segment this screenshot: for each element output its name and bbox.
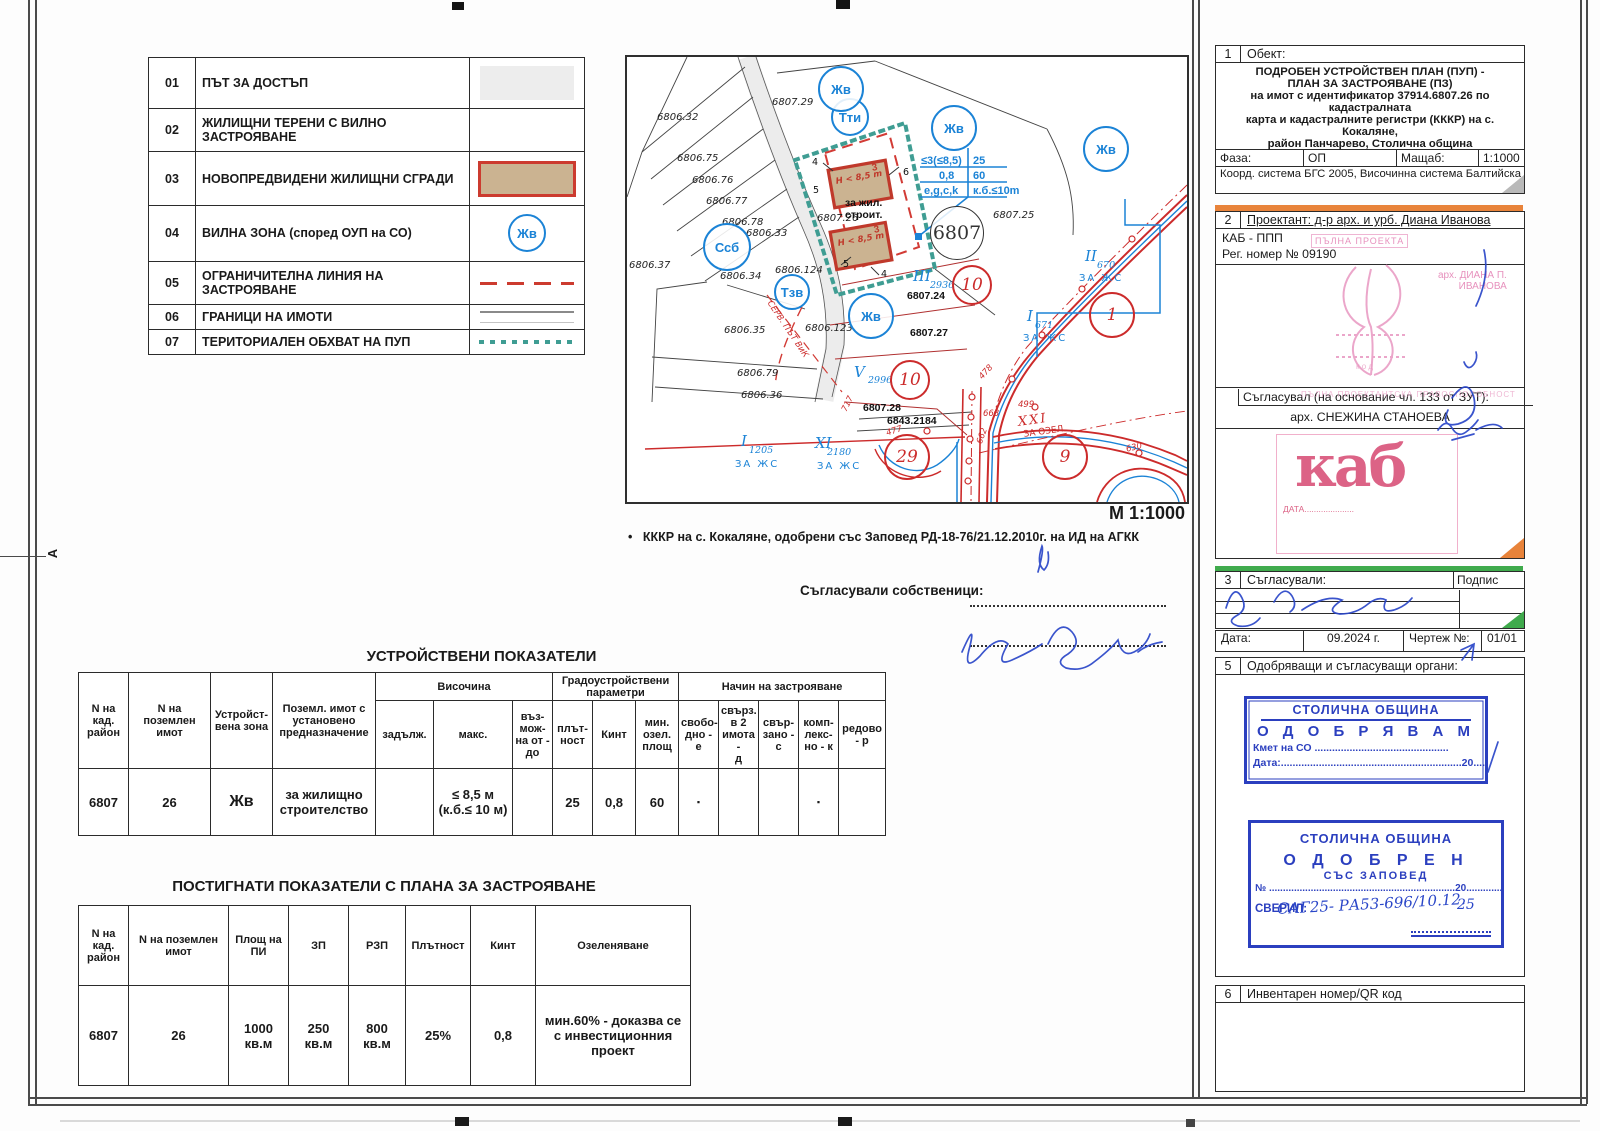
map-label: II: [1085, 247, 1097, 265]
th-redovo: редово - р: [839, 701, 886, 769]
fold-marker-letter: A: [45, 549, 60, 558]
cell2-zp: 250 кв.м: [289, 986, 349, 1086]
panel6-header: 6 Инвентарен номер/QR код: [1216, 986, 1524, 1003]
frame-sidebar-sep-inner: [1198, 0, 1200, 1097]
th2-kint: Кинт: [471, 906, 536, 986]
divider: [1216, 428, 1524, 429]
panel3-number: 3: [1216, 572, 1241, 588]
cell-ozel: 60: [636, 769, 679, 836]
kab-date-line: ДАТА.....................: [1283, 504, 1457, 514]
legend-row: 02 ЖИЛИЩНИ ТЕРЕНИ С ВИЛНО ЗАСТРОЯВАНЕ: [149, 109, 585, 152]
property-border-symbol: [480, 311, 574, 323]
legend-symbol-cell: [470, 305, 585, 330]
cell-kompleksno-mark: ▪: [799, 769, 839, 836]
cell-kint: 0,8: [593, 769, 636, 836]
restriction-line-symbol: [480, 282, 574, 285]
th-kompleksno: комп- лекс- но - к: [799, 701, 839, 769]
map-zone-circle: Жв: [848, 293, 894, 339]
legend-label: НОВОПРЕДВИДЕНИ ЖИЛИЩНИ СГРАДИ: [196, 152, 470, 206]
table1-title: УСТРОЙСТВЕНИ ПОКАЗАТЕЛИ: [78, 648, 885, 665]
legend-num: 02: [149, 109, 196, 152]
faza-row: Фаза: ОП Мащаб: 1:1000: [1216, 149, 1524, 166]
stamp2-sig-line: [1411, 935, 1491, 937]
map-label: 4: [881, 269, 887, 280]
coord-system: Коорд. система БГС 2005, Височинна систе…: [1216, 166, 1524, 181]
sig-row: [1216, 602, 1524, 614]
legend-num: 01: [149, 58, 196, 109]
map-label: 0,8: [939, 170, 954, 182]
panel3-header: 3 Съгласували: Подпис: [1216, 572, 1524, 589]
th-ozel: мин. озел. площ: [636, 701, 679, 769]
map-zone-circle: 9: [1042, 434, 1088, 480]
map-label: III: [913, 267, 931, 285]
podpis-divider: [1459, 590, 1460, 628]
frame-bottom-inner: [28, 1104, 1587, 1106]
map-label: 6806.77: [706, 196, 747, 207]
cell-redovo-mark: [839, 769, 886, 836]
frame-right-outer: [1580, 0, 1582, 1104]
divider: [1216, 387, 1524, 388]
th2-zp: ЗП: [289, 906, 349, 986]
map-zone-circle: Жв: [818, 66, 864, 112]
designer-name: Проектант: д-р арх. и урб. Диана Иванова: [1241, 212, 1524, 228]
th-kint: Кинт: [593, 701, 636, 769]
stamp2-num-dots: ........................................…: [1269, 883, 1501, 894]
signature-line: [970, 605, 1166, 607]
th2-imot: N на поземлен имот: [129, 906, 229, 986]
map-label: 5: [813, 185, 819, 196]
th-prednaznachenie: Поземл. имот с установено предназначение: [273, 673, 376, 769]
map-label: 6806.124: [775, 265, 823, 276]
legend-row: 04 ВИЛНА ЗОНА (според ОУП на СО) Жв: [149, 205, 585, 261]
sig-row: [1216, 589, 1460, 602]
map-label: за жил. строит.: [845, 197, 882, 221]
legend-symbol-cell: Жв: [470, 205, 585, 261]
frame-right-inner: [1586, 0, 1588, 1104]
map-label: I: [1027, 307, 1033, 325]
th-pozemlen-imot: N на поземлен имот: [129, 673, 211, 769]
panel5-label: Одобряващи и съгласуващи органи:: [1241, 658, 1524, 674]
frame-bottom-outer: [28, 1097, 1587, 1099]
legend-symbol-cell: [470, 152, 585, 206]
legend-row: 05 ОГРАНИЧИТЕЛНА ЛИНИЯ НА ЗАСТРОЯВАНЕ: [149, 262, 585, 305]
corner-mark-gray: [1502, 175, 1524, 193]
frame-left-inner: [35, 0, 37, 1104]
map-label: 6806.37: [629, 260, 670, 271]
th2-platnost: Плътност: [406, 906, 471, 986]
th-group-visochina: Височина: [376, 673, 553, 701]
title-block-inventory: 6 Инвентарен номер/QR код: [1215, 985, 1525, 1092]
th-svarzano-2: свърз. в 2 имота - д: [719, 701, 759, 769]
cell2-ozel: мин.60% - доказва се с инвестиционния пр…: [536, 986, 691, 1086]
th-svobodno: свобо- дно - е: [679, 701, 719, 769]
map-label: 6807.28: [863, 402, 901, 414]
architect-name-stamp: арх. ДИАНА П. ИВАНОВА: [1438, 270, 1507, 292]
cell2-kint: 0,8: [471, 986, 536, 1086]
map-label: 2996: [868, 375, 892, 386]
frame-sidebar-sep-outer: [1192, 0, 1194, 1097]
map-label: 60: [973, 170, 985, 182]
stamp1-date-line: Дата:...................................…: [1247, 754, 1485, 769]
scan-edge-bar: [60, 1120, 1580, 1122]
th2-plosht: Площ на ПИ: [229, 906, 289, 986]
map-label: 6807.24: [907, 290, 945, 302]
stamp2-approved: О Д О Б Р Е Н: [1251, 852, 1501, 870]
th-zona: Устройст- вена зона: [211, 673, 273, 769]
legend-symbol-cell: [470, 58, 585, 109]
th2-kad: N на кад. район: [79, 906, 129, 986]
cell-platnost: 25: [553, 769, 593, 836]
panel2-number: 2: [1216, 212, 1241, 228]
achieved-indicators-table: N на кад. район N на поземлен имот Площ …: [78, 905, 690, 1085]
th2-ozel: Озеленяване: [536, 906, 691, 986]
fold-mark-top-1: [452, 2, 464, 10]
corner-mark-green: [1502, 611, 1524, 628]
map-label: 6806.34: [720, 271, 761, 282]
legend-label: ЖИЛИЩНИ ТЕРЕНИ С ВИЛНО ЗАСТРОЯВАНЕ: [196, 109, 470, 152]
fold-mark-bottom-1: [455, 1117, 469, 1126]
map-zone-circle: 1: [1089, 292, 1135, 338]
title-block-designer: 2 Проектант: д-р арх. и урб. Диана Ивано…: [1215, 211, 1525, 559]
approval-stamp-1: СТОЛИЧНА ОБЩИНА О Д О Б Р Я В А М Кмет н…: [1244, 696, 1488, 784]
map-label: к.б.≤10m: [973, 185, 1019, 197]
map-label: 25: [973, 155, 985, 167]
map-zone-circle: Ссб: [703, 223, 751, 271]
cell2-platnost: 25%: [406, 986, 471, 1086]
cell2-plosht: 1000 кв.м: [229, 986, 289, 1086]
legend-symbol-cell: [470, 109, 585, 152]
map-label: 499: [1018, 400, 1034, 410]
road-band-symbol: [480, 66, 574, 100]
panel1-header: 1 Обект:: [1216, 46, 1524, 63]
cadastral-map: 6806.326806.756806.766806.776806.786806.…: [625, 55, 1189, 504]
fold-mark-top-2: [836, 0, 850, 9]
map-label: 671: [1035, 320, 1053, 331]
map-label: 1205: [749, 445, 773, 456]
panel1-label: Обект:: [1241, 46, 1524, 62]
stamp-kod: к о д: [1356, 362, 1373, 371]
legend-table: 01 ПЪТ ЗА ДОСТЪП 02 ЖИЛИЩНИ ТЕРЕНИ С ВИЛ…: [148, 57, 585, 355]
map-label: 6: [903, 167, 909, 178]
urban-indicators-table: N на кад. район N на поземлен имот Устро…: [78, 672, 885, 835]
map-label: 6806.79: [737, 368, 778, 379]
legend-num: 05: [149, 262, 196, 305]
cell-vazmojna: [513, 769, 553, 836]
legend-label: ОГРАНИЧИТЕЛНА ЛИНИЯ НА ЗАСТРОЯВАНЕ: [196, 262, 470, 305]
date-row: Дата: 09.2024 г. Чертеж №: 01/01: [1215, 630, 1525, 652]
th-maks: макс.: [434, 701, 513, 769]
fold-marker-line: [0, 556, 46, 557]
legend-row: 06 ГРАНИЦИ НА ИМОТИ: [149, 305, 585, 330]
kab-stamp-box: каб ДАТА.....................: [1276, 434, 1458, 554]
stamp2-num-prefix: №: [1255, 883, 1266, 894]
panel6-number: 6: [1216, 986, 1241, 1002]
map-label: 6806.35: [724, 325, 765, 336]
stamp-faint-text: ПЪЛНА ПРОЕКТАНТСКА ПРАВОСПОСОБНОСТ: [1301, 390, 1516, 399]
th-platnost: плът- ност: [553, 701, 593, 769]
map-label: 6807.25: [993, 210, 1034, 221]
legend-row: 01 ПЪТ ЗА ДОСТЪП: [149, 58, 585, 109]
faza-value: ОП: [1304, 150, 1397, 166]
map-label: 670: [1097, 260, 1115, 271]
stamp2-title: СТОЛИЧНА ОБЩИНА: [1251, 831, 1501, 846]
map-zone-circle: Жв: [931, 105, 977, 151]
panel6-label: Инвентарен номер/QR код: [1241, 986, 1524, 1002]
legend-row: 03 НОВОПРЕДВИДЕНИ ЖИЛИЩНИ СГРАДИ: [149, 152, 585, 206]
cell-svobodno-mark: ▪: [679, 769, 719, 836]
approval-stamp-2: СТОЛИЧНА ОБЩИНА О Д О Б Р Е Н СЪС ЗАПОВЕ…: [1248, 820, 1504, 948]
cell2-kad: 6807: [79, 986, 129, 1086]
legend-num: 07: [149, 330, 196, 355]
saglasuvali-label: Съгласували:: [1247, 573, 1326, 587]
architect2-name: арх. СНЕЖИНА СТАНОЕВА: [1216, 410, 1524, 424]
map-label: ≤3(≤8,5): [921, 155, 962, 167]
signature-line: [970, 645, 1166, 647]
villa-zone-symbol: Жв: [508, 214, 546, 252]
stamp1-approve: О Д О Б Р Я В А М: [1247, 723, 1485, 740]
kkkr-note-text: КККР на с. Кокаляне, одобрени със Запове…: [643, 530, 1139, 544]
map-zone-circle: 10: [952, 265, 992, 305]
fold-mark-bottom-3: [1186, 1119, 1195, 1127]
mashtab-value: 1:1000: [1479, 150, 1524, 166]
map-label: 6806.75: [677, 153, 718, 164]
map-label: 663: [983, 409, 999, 419]
map-label: ЗА ЖС: [1079, 273, 1123, 284]
bullet-icon: •: [628, 530, 632, 544]
map-label: ЗА ЖС: [817, 461, 861, 472]
chertej-value: 01/01: [1482, 631, 1524, 651]
plan-sheet: A 01 ПЪТ ЗА ДОСТЪП 02 ЖИЛИЩНИ ТЕРЕНИ С В…: [0, 0, 1600, 1131]
mashtab-label: Мащаб:: [1397, 150, 1479, 166]
cell-kad: 6807: [79, 769, 129, 836]
legend-symbol-cell: [470, 330, 585, 355]
map-label: 6806.36: [741, 390, 782, 401]
corner-mark-orange: [1500, 538, 1524, 558]
panel2-header: 2 Проектант: д-р арх. и урб. Диана Ивано…: [1216, 212, 1524, 229]
th-zadalj: задълж.: [376, 701, 434, 769]
data-label: Дата:: [1216, 631, 1304, 651]
title-block-approving: 5 Одобряващи и съгласуващи органи: СТОЛИ…: [1215, 657, 1525, 977]
faza-label: Фаза:: [1216, 150, 1304, 166]
legend-label: ГРАНИЦИ НА ИМОТИ: [196, 305, 470, 330]
cell2-imot: 26: [129, 986, 229, 1086]
map-label: 6806.123: [805, 323, 853, 334]
map-label: 6807.27: [910, 327, 948, 339]
podpis-column: Подпис: [1453, 572, 1524, 588]
stamp1-mayor-line: Кмет на СО .............................…: [1247, 740, 1485, 754]
cell-maks: ≤ 8,5 м (к.б.≤ 10 м): [434, 769, 513, 836]
cell-prednaznachenie: за жилищно строителство: [273, 769, 376, 836]
title-block-agreed: 3 Съгласували: Подпис: [1215, 571, 1525, 629]
cell-imot: 26: [129, 769, 211, 836]
map-label: 6806.76: [692, 175, 733, 186]
map-zone-circle: 6807: [930, 206, 984, 260]
legend-row: 07 ТЕРИТОРИАЛЕН ОБХВАТ НА ПУП: [149, 330, 585, 355]
cell-svarzano-mark: [759, 769, 799, 836]
map-zone-circle: 29: [884, 434, 930, 480]
map-label: 6806.33: [746, 228, 787, 239]
map-label: ЗА ЖС: [1023, 333, 1067, 344]
cell-svarzano2-mark: [719, 769, 759, 836]
new-building-symbol: [478, 161, 576, 197]
map-zone-circle: 10: [890, 360, 930, 400]
chertej-label: Чертеж №:: [1404, 631, 1482, 651]
map-label: 2180: [827, 447, 851, 458]
th-group-nachin: Начин на застрояване: [679, 673, 886, 701]
map-label: 6806.32: [657, 112, 698, 123]
stamp1-title: СТОЛИЧНА ОБЩИНА: [1261, 703, 1471, 721]
legend-symbol-cell: [470, 262, 585, 305]
map-label: e,g,c,k: [924, 185, 958, 197]
fold-mark-bottom-2: [838, 1117, 852, 1126]
stamp2-sig-dots: [1411, 931, 1491, 933]
panel5-number: 5: [1216, 658, 1241, 674]
map-label: ЗА ЖС: [735, 459, 779, 470]
legend-label: ТЕРИТОРИАЛЕН ОБХВАТ НА ПУП: [196, 330, 470, 355]
th-vazmojna: въз- мож- на от - до: [513, 701, 553, 769]
map-label: 5: [843, 259, 849, 270]
legend-num: 06: [149, 305, 196, 330]
project-title: ПОДРОБЕН УСТРОЙСТВЕН ПЛАН (ПУП) - ПЛАН З…: [1216, 63, 1524, 149]
map-zone-circle: Жв: [1083, 126, 1129, 172]
stamp2-order: СЪС ЗАПОВЕД: [1251, 870, 1501, 882]
frame-left-outer: [28, 0, 30, 1104]
cell2-rzp: 800 кв.м: [349, 986, 406, 1086]
map-label: V: [854, 363, 865, 381]
map-scale: М 1:1000: [1000, 503, 1185, 524]
cell-zadalj: [376, 769, 434, 836]
kab-logo: каб: [1295, 439, 1457, 494]
legend-num: 03: [149, 152, 196, 206]
stamp2-handwritten-year: 25: [1457, 897, 1475, 913]
panel5-header: 5 Одобряващи и съгласуващи органи:: [1216, 658, 1524, 675]
pup-scope-symbol: [479, 340, 575, 344]
data-value: 09.2024 г.: [1304, 631, 1404, 651]
th-group-gradoustroystveni: Градоустройствени параметри: [553, 673, 679, 701]
map-zone-circle: Тзв: [774, 274, 810, 310]
th2-rzp: РЗП: [349, 906, 406, 986]
legend-num: 04: [149, 205, 196, 261]
map-label: 2936: [930, 280, 954, 291]
legend-label: ВИЛНА ЗОНА (според ОУП на СО): [196, 205, 470, 261]
panel1-number: 1: [1216, 46, 1241, 62]
table2-title: ПОСТИГНАТИ ПОКАЗАТЕЛИ С ПЛАНА ЗА ЗАСТРОЯ…: [78, 878, 690, 895]
title-block-object: 1 Обект: ПОДРОБЕН УСТРОЙСТВЕН ПЛАН (ПУП)…: [1215, 45, 1525, 194]
owners-agreed-label: Съгласували собственици:: [800, 583, 983, 598]
stamp-small-text: ПЪЛНА ПРОЕКТА: [1311, 234, 1408, 248]
map-label: 6807.29: [772, 97, 813, 108]
th-svarzano: свър- зано - с: [759, 701, 799, 769]
panel3-label: Съгласували:: [1241, 572, 1453, 588]
cell-zona: Жв: [211, 769, 273, 836]
th-kad-rayon: N на кад. район: [79, 673, 129, 769]
legend-label: ПЪТ ЗА ДОСТЪП: [196, 58, 470, 109]
kkkr-note: • КККР на с. Кокаляне, одобрени със Запо…: [628, 530, 1188, 544]
map-label: I: [741, 432, 747, 450]
map-label: 4: [812, 157, 818, 168]
